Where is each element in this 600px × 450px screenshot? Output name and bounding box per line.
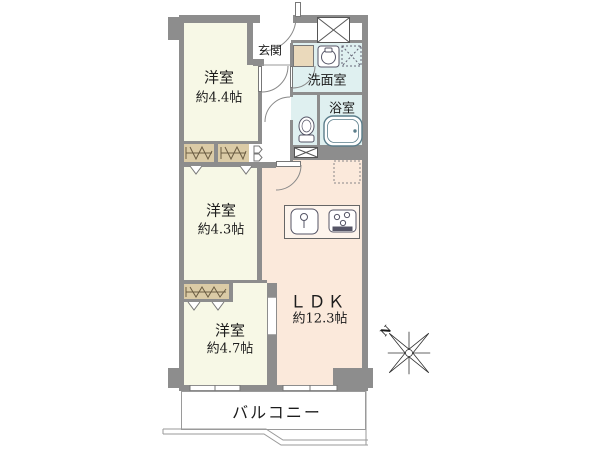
window-ldk bbox=[283, 386, 337, 390]
label-room43-name: 洋室 bbox=[206, 200, 236, 221]
ldk-door-leaf bbox=[276, 161, 301, 167]
entrance-opening bbox=[260, 15, 293, 23]
hallway bbox=[262, 65, 290, 162]
wall-hall-bottom bbox=[248, 162, 276, 168]
room44-door-leaf bbox=[258, 66, 262, 92]
washroom-door-leaf bbox=[290, 66, 293, 88]
wall-wash-bath bbox=[291, 92, 362, 95]
label-ldk-area: 約12.3帖 bbox=[293, 308, 348, 327]
label-washroom: 洗面室 bbox=[307, 70, 346, 89]
window-room47 bbox=[190, 386, 240, 390]
label-balcony: バルコニー bbox=[232, 399, 322, 423]
wall-left bbox=[179, 15, 184, 387]
wall-genkan-jog bbox=[247, 18, 253, 65]
pipe-space-box bbox=[317, 17, 350, 43]
wall-toilet-bath bbox=[317, 95, 320, 145]
sliding-door-47 bbox=[268, 297, 276, 335]
wall-closet2-bottom bbox=[183, 299, 233, 302]
entrance-door-leaf bbox=[295, 2, 301, 17]
label-genkan: 玄関 bbox=[258, 42, 282, 59]
wall-right bbox=[362, 15, 368, 387]
kitchen-counter bbox=[284, 205, 360, 239]
wall-block-bottomleft bbox=[168, 368, 184, 388]
floor-plan: 玄関 洗面室 浴室 洋室 約4.4帖 洋室 約4.3帖 洋室 約4.7帖 ＬＤＫ… bbox=[0, 0, 600, 450]
label-room44-name: 洋室 bbox=[204, 67, 234, 88]
shoe-cabinet bbox=[293, 45, 314, 67]
closet-door-pocket bbox=[249, 143, 262, 163]
wall-block-bottomright bbox=[333, 368, 373, 388]
room-toilet bbox=[291, 95, 317, 145]
wall-closet1-divider bbox=[214, 143, 218, 163]
label-room43-area: 約4.3帖 bbox=[198, 219, 245, 238]
label-bathroom: 浴室 bbox=[329, 98, 355, 117]
wall-hall-44-b bbox=[258, 92, 262, 143]
wall-closet1-top bbox=[183, 141, 262, 144]
label-room47-area: 約4.7帖 bbox=[207, 338, 254, 357]
label-north: N bbox=[378, 323, 394, 339]
label-room44-area: 約4.4帖 bbox=[196, 87, 243, 106]
pipe-space-box-small bbox=[294, 147, 318, 158]
wall-43-ldk bbox=[257, 166, 262, 283]
wall-43-47 bbox=[183, 280, 267, 283]
